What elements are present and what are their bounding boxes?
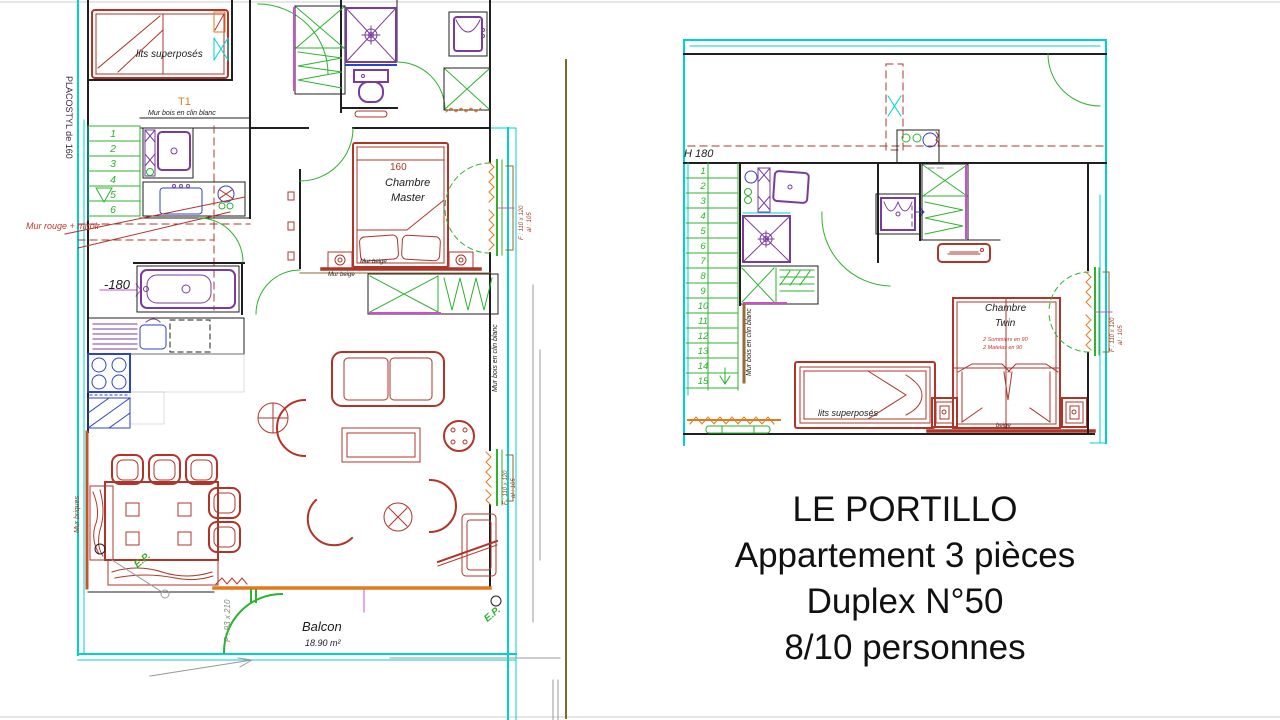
wall-label-red-mirror: Mur rouge + miroir [26,222,100,231]
title-line-2: Appartement 3 pièces [695,533,1115,579]
drawer-unit [938,244,990,262]
wood-bench [90,486,113,560]
master-room-label-2: Master [391,193,425,204]
twin-nightstand-right [1062,398,1087,427]
stair-number: 8 [700,269,705,284]
window-sill-label-2: al : 105 [511,478,517,498]
twin-note-1: 2 Sommiers en 90 [983,338,1028,344]
stair-number: 13 [698,344,709,359]
armchair-1 [277,400,305,456]
bathtub [134,263,244,314]
wall-label-beige-upper: beige [996,423,1011,429]
washing-machine-lower [143,128,193,178]
stove [88,354,130,395]
master-room-label-1: Chambre [385,178,430,189]
window-twin [1049,268,1112,355]
stair-number: 6 [700,239,705,254]
stair-number: 4 [110,173,116,188]
window-size-label-upper: F : 110 x 120 [1110,318,1116,352]
stair-number: 11 [698,314,708,329]
stair-number: 15 [698,374,709,389]
level-label: -180 [104,278,130,291]
armchair-3 [430,480,456,532]
closet-top-right [444,68,490,110]
stair-number: 3 [110,157,116,172]
coffee-table [342,428,420,462]
kitchen [88,318,244,428]
title-block: LE PORTILLO Appartement 3 pièces Duplex … [695,487,1115,671]
master-bed-width: 160 [390,163,407,173]
radiator-upper [688,417,780,433]
wall-label-beige-a: Mur beige [360,259,387,265]
stairs-lower-numbers: 123456 [100,127,126,218]
height-label: H 180 [684,149,713,160]
closet-upper-right [922,164,968,240]
wall-label-beige-b: Mur beige [328,272,355,278]
stair-number: 2 [110,142,116,157]
stair-number: 12 [698,329,709,344]
window-size-label-2: F : 110 x 120 [503,471,509,505]
toilet-lower [354,70,388,102]
window-sill-label-1: al : 105 [527,212,533,232]
balcony-area-label: 18.90 m² [305,639,341,648]
bunk-bed-label-lower: lits superposés [136,50,203,60]
master-nightstand-right [449,252,473,269]
side-table-2 [384,503,412,531]
shower-lower [346,8,396,65]
sideboard [108,560,218,585]
window-size-label-1: F : 110 x 120 [519,206,525,240]
wall-label-wood-upper: Mur bois en clin blanc [746,308,753,376]
master-dressing [368,274,498,314]
stair-number: 4 [700,209,705,224]
stair-number: 10 [698,299,709,314]
armchair-2 [308,500,352,545]
title-line-1: LE PORTILLO [695,487,1115,533]
washbasin-top-right [449,12,487,56]
wall-label-wood-top: Mur bois en clin blanc [148,110,216,117]
stair-number: 1 [700,164,705,179]
dining-table [105,482,218,560]
window-sill-label-upper: al : 105 [1118,325,1124,345]
stairs-upper-numbers: 123456789101112131415 [690,164,716,389]
stair-number: 3 [700,194,705,209]
title-line-3: Duplex N°50 [695,579,1115,625]
kitchenette-counter [143,182,245,216]
balcony-label: Balcon [302,620,342,633]
stair-number: 7 [700,254,705,269]
closet-upper-left [740,266,818,304]
double-sink-upper [876,194,924,234]
stair-number: 1 [110,127,116,142]
stair-number: 6 [110,203,116,218]
side-table-3 [444,421,474,451]
tv-cabinet [438,514,497,576]
wall-label-wood-right: Mur bois en clin blanc [492,324,499,392]
master-nightstand-left [328,252,352,269]
title-line-4: 8/10 personnes [695,625,1115,671]
chimney [886,64,903,150]
window-master [445,160,514,255]
side-table-1 [258,403,288,433]
wall-label-placostyl: PLACOSTYL de 160 [64,76,73,159]
stair-number: 2 [700,179,705,194]
stair-number: 9 [700,284,705,299]
sofa [332,352,444,406]
floor-plan-page: PLACOSTYL de 160 lits superposés T1 Mur … [0,0,1280,720]
stair-number: 5 [110,188,116,203]
bunk-bed-label-upper: lits superposés [818,409,878,418]
twin-note-2: 2 Matelas en 90 [983,346,1022,352]
bunk-bed-upper [795,362,935,428]
stair-number: 5 [700,224,705,239]
unit-label: T1 [178,97,191,108]
twin-room-label-2: Twin [995,319,1015,329]
wall-label-bricks: Mur briques [74,496,81,533]
twin-room-label-1: Chambre [985,304,1026,314]
stair-number: 14 [698,359,709,374]
door-size-label: P : 93 x 210 [224,600,232,642]
bunk-bed-lower [92,10,228,78]
upper-floor-drawing [684,40,1112,445]
